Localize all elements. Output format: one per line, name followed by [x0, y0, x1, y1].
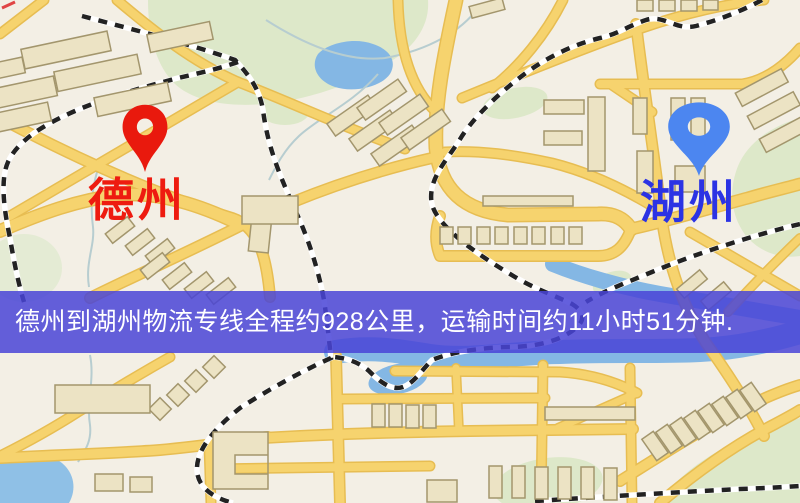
- destination-city-label: 湖州: [640, 179, 738, 225]
- origin-city-label: 德州: [88, 177, 186, 223]
- map-canvas[interactable]: [0, 0, 800, 503]
- route-info-text: 德州到湖州物流专线全程约928公里，运输时间约11小时51分钟.: [15, 307, 733, 337]
- map-viewport: 德州 湖州 德州到湖州物流专线全程约928公里，运输时间约11小时51分钟.: [0, 0, 800, 503]
- route-info-banner: 德州到湖州物流专线全程约928公里，运输时间约11小时51分钟.: [0, 291, 800, 353]
